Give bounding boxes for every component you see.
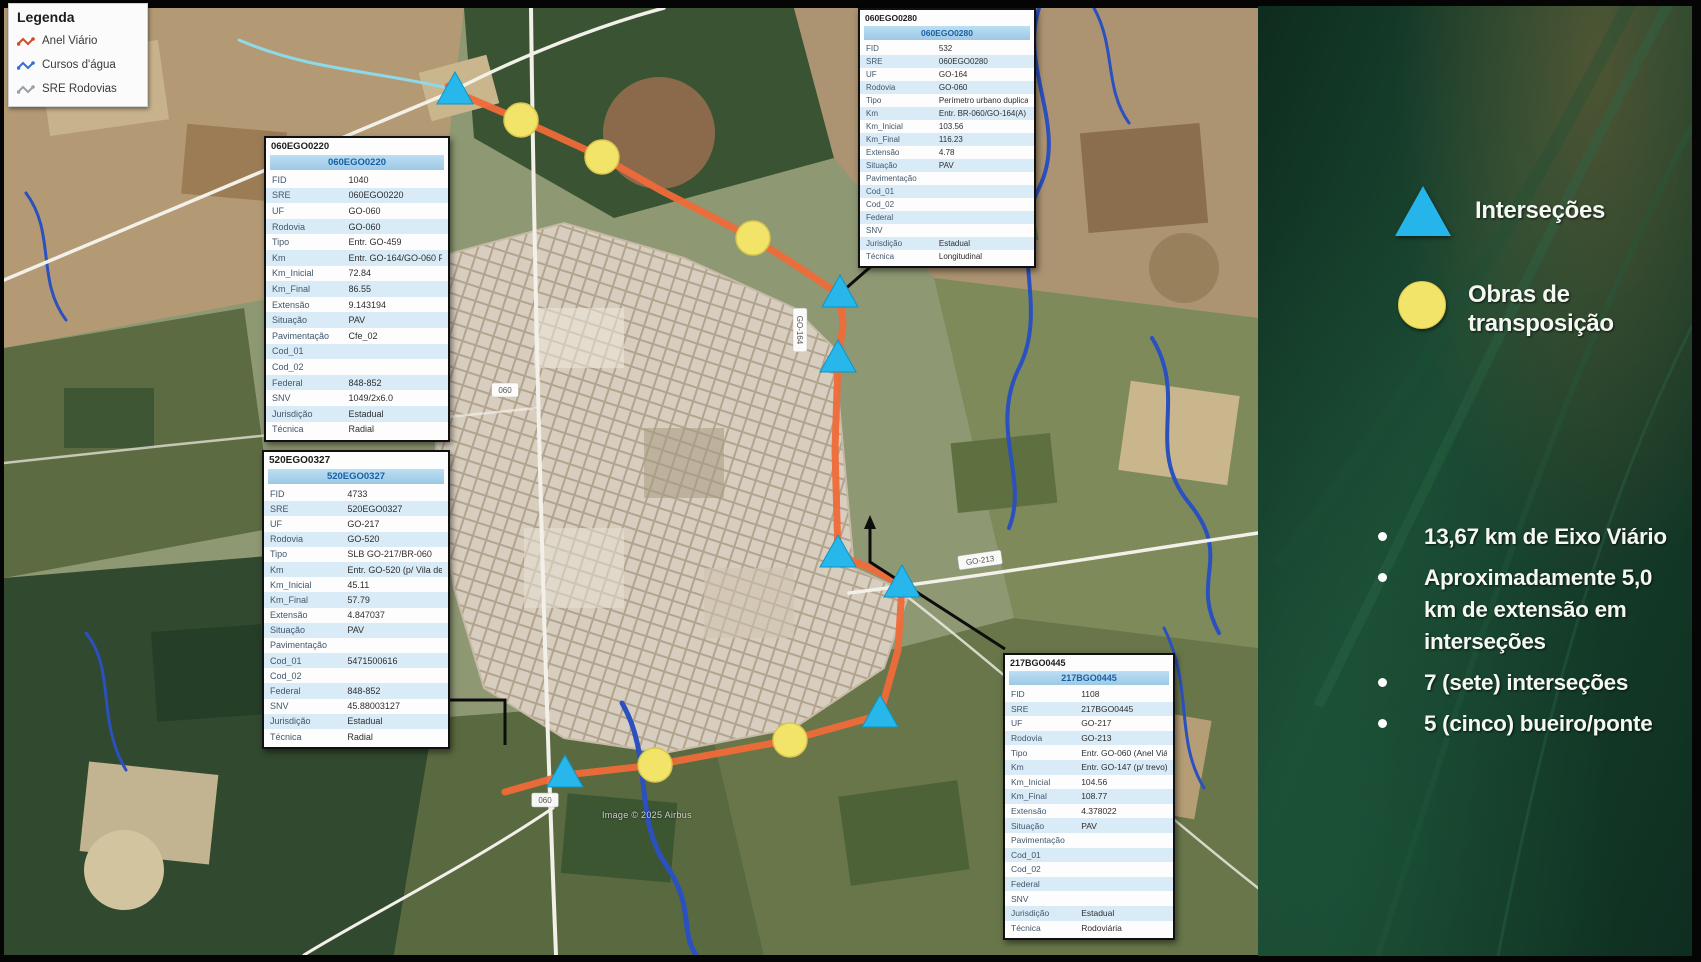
svg-text:GO-164: GO-164 (795, 316, 804, 345)
field-label: Km (270, 565, 347, 575)
panel-header: 217BGO0445 (1009, 671, 1169, 685)
panel-rows: FID1108SRE217BGO0445UFGO-217RodoviaGO-21… (1005, 687, 1173, 935)
field-value: 1040 (349, 175, 443, 185)
field-label: SRE (866, 57, 939, 66)
field-value: 4733 (347, 489, 442, 499)
field-value: Entr. GO-164/GO-060 Per. de Goiás (349, 253, 443, 263)
info-sidebar: Interseções Obras de transposição 13,67 … (1258, 6, 1692, 956)
field-value: Entr. BR-060/GO-164(A) (939, 109, 1028, 118)
field-label: Jurisdição (866, 239, 939, 248)
stats-bullet-list: 13,67 km de Eixo ViárioAproximadamente 5… (1376, 521, 1681, 749)
highway-texture (1258, 6, 1692, 956)
field-value: PAV (347, 625, 442, 635)
attribute-row: Km_Inicial45.11 (264, 577, 448, 592)
field-value: GO-520 (347, 534, 442, 544)
legend-items: Anel Viário Cursos d'água SRE Rodovias (17, 29, 139, 101)
attribute-row: KmEntr. GO-147 (p/ trevo) (1005, 760, 1173, 775)
attribute-row: Pavimentação (1005, 833, 1173, 848)
attribute-row: Cod_02 (1005, 862, 1173, 877)
field-value: Entr. GO-520 (p/ Vila de Goiás) (347, 565, 442, 575)
field-label: Técnica (866, 252, 939, 261)
attribute-row: Extensão4.78 (860, 146, 1034, 159)
attribute-row: Cod_01 (860, 185, 1034, 198)
attribute-row: TécnicaRadial (264, 729, 448, 744)
gis-attribute-panel-4[interactable]: 217BGO0445 217BGO0445 FID1108SRE217BGO04… (1003, 653, 1175, 940)
field-value: Estadual (349, 409, 443, 419)
attribute-row: FID532 (860, 42, 1034, 55)
field-label: Técnica (1011, 923, 1081, 933)
field-label: Situação (270, 625, 347, 635)
field-label: Tipo (866, 96, 939, 105)
svg-text:060: 060 (498, 386, 512, 395)
field-label: FID (1011, 689, 1081, 699)
intersection-triangle-icon (1395, 186, 1451, 236)
field-label: Km (866, 109, 939, 118)
attribute-row: TécnicaLongitudinal (860, 250, 1034, 263)
transposition-marker (504, 103, 538, 137)
field-value: 217BGO0445 (1081, 704, 1167, 714)
field-value: GO-060 (349, 222, 443, 232)
attribute-row: UFGO-217 (1005, 716, 1173, 731)
field-label: Km_Inicial (272, 268, 349, 278)
field-label: UF (272, 206, 349, 216)
field-label: Km (272, 253, 349, 263)
field-value: Estadual (1081, 908, 1167, 918)
attribute-row: UFGO-060 (266, 203, 448, 219)
field-value: SLB GO-217/BR-060 (347, 549, 442, 559)
field-label: FID (866, 44, 939, 53)
slide: 060060GO-164GO-213 Image © 2025 Airbus L… (0, 0, 1701, 962)
attribute-row: Extensão4.378022 (1005, 804, 1173, 819)
attribute-row: SNV (860, 224, 1034, 237)
attribute-row: Pavimentação (264, 638, 448, 653)
attribute-row: Cod_02 (264, 668, 448, 683)
field-label: Pavimentação (270, 640, 347, 650)
gis-attribute-panel-3[interactable]: 060EGO0280 060EGO0280 FID532SRE060EGO028… (858, 8, 1036, 268)
attribute-row: SituaçãoPAV (860, 159, 1034, 172)
attribute-row: SNV (1005, 891, 1173, 906)
field-value: Radial (347, 732, 442, 742)
attribute-row: Pavimentação (860, 172, 1034, 185)
attribute-row: Km_Inicial104.56 (1005, 775, 1173, 790)
field-value: Entr. GO-060 (Anel Viário) (1081, 748, 1167, 758)
attribute-row: TipoEntr. GO-060 (Anel Viário) (1005, 745, 1173, 760)
attribute-row: FID4733 (264, 486, 448, 501)
attribute-row: Federal848-852 (264, 683, 448, 698)
field-value: 4.378022 (1081, 806, 1167, 816)
field-value: GO-164 (939, 70, 1028, 79)
field-label: Pavimentação (1011, 835, 1081, 845)
attribute-row: Cod_015471500616 (264, 653, 448, 668)
field-value: PAV (1081, 821, 1167, 831)
attribute-row: FID1040 (266, 172, 448, 188)
field-value: Longitudinal (939, 252, 1028, 261)
legend-item: SRE Rodovias (17, 77, 139, 101)
intersections-label: Interseções (1475, 197, 1605, 226)
field-value: 45.11 (347, 580, 442, 590)
attribute-row: SituaçãoPAV (266, 312, 448, 328)
legend-title: Legenda (17, 9, 139, 25)
field-label: Federal (1011, 879, 1081, 889)
field-label: Jurisdição (1011, 908, 1081, 918)
transposition-marker (773, 723, 807, 757)
legend-item-label: Cursos d'água (42, 59, 116, 71)
field-label: UF (270, 519, 347, 529)
field-label: Extensão (866, 148, 939, 157)
panel-rows: FID1040SRE060EGO0220UFGO-060RodoviaGO-06… (266, 172, 448, 437)
field-label: Rodovia (270, 534, 347, 544)
field-label: Cod_01 (272, 346, 349, 356)
legend-item-label: SRE Rodovias (42, 83, 117, 95)
legend-item: Anel Viário (17, 29, 139, 53)
field-label: SNV (1011, 894, 1081, 904)
road-label: 060 (492, 383, 519, 397)
stat-bullet: Aproximadamente 5,0 km de extensão em in… (1376, 562, 1681, 658)
field-value: Estadual (347, 716, 442, 726)
field-label: Cod_01 (270, 656, 347, 666)
field-label: Tipo (1011, 748, 1081, 758)
field-value: 9.143194 (349, 300, 443, 310)
field-value: Entr. GO-459 (349, 237, 443, 247)
attribute-row: Extensão9.143194 (266, 297, 448, 313)
field-value: 1049/2x6.0 (349, 393, 443, 403)
attribute-row: Federal (860, 211, 1034, 224)
attribute-row: JurisdiçãoEstadual (1005, 906, 1173, 921)
field-label: Rodovia (272, 222, 349, 232)
field-label: SRE (270, 504, 347, 514)
transposition-marker (638, 748, 672, 782)
field-value: PAV (349, 315, 443, 325)
field-label: Pavimentação (866, 174, 939, 183)
attribute-row: Federal (1005, 877, 1173, 892)
field-value: 532 (939, 44, 1028, 53)
attribute-row: Km_Inicial103.56 (860, 120, 1034, 133)
attribute-row: SRE060EGO0280 (860, 55, 1034, 68)
panel-header: 060EGO0280 (864, 26, 1030, 40)
stat-bullet: 5 (cinco) bueiro/ponte (1376, 708, 1681, 740)
field-label: Situação (866, 161, 939, 170)
attribute-row: Cod_01 (1005, 848, 1173, 863)
attribute-row: TipoEntr. GO-459 (266, 234, 448, 250)
attribute-row: UFGO-217 (264, 516, 448, 531)
field-value: 108.77 (1081, 791, 1167, 801)
field-value: Estadual (939, 239, 1028, 248)
field-value: 72.84 (349, 268, 443, 278)
field-value: 1108 (1081, 689, 1167, 699)
field-value: Perímetro urbano duplicado (939, 96, 1028, 105)
field-value: 520EGO0327 (347, 504, 442, 514)
attribute-row: SRE060EGO0220 (266, 188, 448, 204)
field-label: UF (1011, 718, 1081, 728)
field-value: 060EGO0280 (939, 57, 1028, 66)
field-label: Cod_02 (270, 671, 347, 681)
field-label: Extensão (272, 300, 349, 310)
field-label: SRE (1011, 704, 1081, 714)
attribute-row: SRE520EGO0327 (264, 501, 448, 516)
panel-title: 060EGO0280 (860, 10, 1034, 24)
field-value: 848-852 (347, 686, 442, 696)
field-label: Km_Final (1011, 791, 1081, 801)
attribute-row: RodoviaGO-060 (860, 81, 1034, 94)
field-label: UF (866, 70, 939, 79)
field-value: GO-217 (1081, 718, 1167, 728)
field-label: Rodovia (866, 83, 939, 92)
field-value: GO-213 (1081, 733, 1167, 743)
field-value: Cfe_02 (349, 331, 443, 341)
attribute-row: Cod_02 (860, 198, 1034, 211)
field-value: PAV (939, 161, 1028, 170)
field-label: SNV (270, 701, 347, 711)
field-label: Rodovia (1011, 733, 1081, 743)
attribute-row: KmEntr. GO-520 (p/ Vila de Goiás) (264, 562, 448, 577)
stat-bullet: 7 (sete) interseções (1376, 667, 1681, 699)
field-label: Federal (270, 686, 347, 696)
field-value: 104.56 (1081, 777, 1167, 787)
svg-text:060: 060 (538, 796, 552, 805)
transposition-marker (736, 221, 770, 255)
panel-rows: FID4733SRE520EGO0327UFGO-217RodoviaGO-52… (264, 486, 448, 744)
legend-item-label: Anel Viário (42, 35, 97, 47)
field-value: 848-852 (349, 378, 443, 388)
attribute-row: FID1108 (1005, 687, 1173, 702)
field-label: Km_Final (270, 595, 347, 605)
water-line-icon (17, 59, 35, 71)
map-legend: Legenda Anel Viário Cursos d'água SRE Ro… (8, 3, 148, 107)
attribute-row: JurisdiçãoEstadual (860, 237, 1034, 250)
field-value: 4.847037 (347, 610, 442, 620)
attribute-row: Km_Final116.23 (860, 133, 1034, 146)
attribute-row: Extensão4.847037 (264, 608, 448, 623)
attribute-row: RodoviaGO-060 (266, 219, 448, 235)
road-line-icon (17, 83, 35, 95)
attribute-row: RodoviaGO-213 (1005, 731, 1173, 746)
road-label: 060 (532, 793, 559, 807)
field-label: Federal (866, 213, 939, 222)
panel-title: 060EGO0220 (266, 138, 448, 153)
panel-title: 520EGO0327 (264, 452, 448, 467)
field-label: Situação (272, 315, 349, 325)
field-label: Km (1011, 762, 1081, 772)
field-label: Técnica (270, 732, 347, 742)
field-value: 103.56 (939, 122, 1028, 131)
field-label: Km_Final (866, 135, 939, 144)
attribute-row: TipoSLB GO-217/BR-060 (264, 547, 448, 562)
stat-bullet: 13,67 km de Eixo Viário (1376, 521, 1681, 553)
field-value: 116.23 (939, 135, 1028, 144)
field-label: Tipo (270, 549, 347, 559)
legend-item: Cursos d'água (17, 53, 139, 77)
field-value: GO-060 (939, 83, 1028, 92)
panel-rows: FID532SRE060EGO0280UFGO-164RodoviaGO-060… (860, 42, 1034, 263)
field-label: Federal (272, 378, 349, 388)
panel-header: 060EGO0220 (270, 155, 444, 170)
field-value: 060EGO0220 (349, 190, 443, 200)
field-label: FID (270, 489, 347, 499)
field-label: SNV (866, 226, 939, 235)
field-value: Radial (349, 424, 443, 434)
attribute-row: JurisdiçãoEstadual (264, 714, 448, 729)
field-label: Km_Inicial (1011, 777, 1081, 787)
attribute-row: KmEntr. GO-164/GO-060 Per. de Goiás (266, 250, 448, 266)
field-value: Entr. GO-147 (p/ trevo) (1081, 762, 1167, 772)
field-value: 4.78 (939, 148, 1028, 157)
attribute-row: Km_Final108.77 (1005, 789, 1173, 804)
field-label: Cod_02 (1011, 864, 1081, 874)
attribute-row: UFGO-164 (860, 68, 1034, 81)
legend-transpositions: Obras de transposição (1398, 281, 1643, 339)
attribute-row: RodoviaGO-520 (264, 532, 448, 547)
route-line-icon (17, 35, 35, 47)
attribute-row: PavimentaçãoCfe_02 (266, 328, 448, 344)
attribute-row: Km_Inicial72.84 (266, 266, 448, 282)
transpositions-label: Obras de transposição (1468, 281, 1643, 339)
field-label: Cod_02 (866, 200, 939, 209)
transposition-circle-icon (1398, 281, 1446, 329)
attribute-row: SituaçãoPAV (1005, 818, 1173, 833)
attribute-row: Federal848-852 (266, 375, 448, 391)
field-label: Cod_02 (272, 362, 349, 372)
field-label: SRE (272, 190, 349, 200)
field-label: Pavimentação (272, 331, 349, 341)
field-label: Situação (1011, 821, 1081, 831)
field-label: Km_Inicial (270, 580, 347, 590)
attribute-row: SituaçãoPAV (264, 623, 448, 638)
field-value: 57.79 (347, 595, 442, 605)
field-label: Extensão (270, 610, 347, 620)
field-label: Técnica (272, 424, 349, 434)
field-value: 45.88003127 (347, 701, 442, 711)
field-value: Rodoviária (1081, 923, 1167, 933)
field-label: Extensão (1011, 806, 1081, 816)
attribute-row: Cod_01 (266, 344, 448, 360)
attribute-row: SNV1049/2x6.0 (266, 390, 448, 406)
attribute-row: TipoPerímetro urbano duplicado (860, 94, 1034, 107)
field-value: 86.55 (349, 284, 443, 294)
field-label: Km_Inicial (866, 122, 939, 131)
road-label: GO-164 (793, 308, 807, 352)
attribute-row: Cod_02 (266, 359, 448, 375)
field-label: FID (272, 175, 349, 185)
transposition-marker (585, 140, 619, 174)
legend-intersections: Interseções (1395, 186, 1605, 236)
field-label: SNV (272, 393, 349, 403)
attribute-row: KmEntr. BR-060/GO-164(A) (860, 107, 1034, 120)
attribute-row: TécnicaRodoviária (1005, 921, 1173, 936)
attribute-row: TécnicaRadial (266, 422, 448, 438)
attribute-row: SNV45.88003127 (264, 699, 448, 714)
field-label: Cod_01 (866, 187, 939, 196)
attribute-row: Km_Final86.55 (266, 281, 448, 297)
field-value: GO-217 (347, 519, 442, 529)
field-label: Cod_01 (1011, 850, 1081, 860)
field-value: 5471500616 (347, 656, 442, 666)
gis-attribute-panel-1[interactable]: 060EGO0220 060EGO0220 FID1040SRE060EGO02… (264, 136, 450, 442)
map-attribution: Image © 2025 Airbus (602, 810, 692, 820)
attribute-row: Km_Final57.79 (264, 592, 448, 607)
field-label: Jurisdição (270, 716, 347, 726)
field-label: Jurisdição (272, 409, 349, 419)
attribute-row: SRE217BGO0445 (1005, 702, 1173, 717)
field-label: Km_Final (272, 284, 349, 294)
attribute-row: JurisdiçãoEstadual (266, 406, 448, 422)
field-value: GO-060 (349, 206, 443, 216)
gis-attribute-panel-2[interactable]: 520EGO0327 520EGO0327 FID4733SRE520EGO03… (262, 450, 450, 749)
field-label: Tipo (272, 237, 349, 247)
panel-header: 520EGO0327 (268, 469, 444, 484)
panel-title: 217BGO0445 (1005, 655, 1173, 669)
